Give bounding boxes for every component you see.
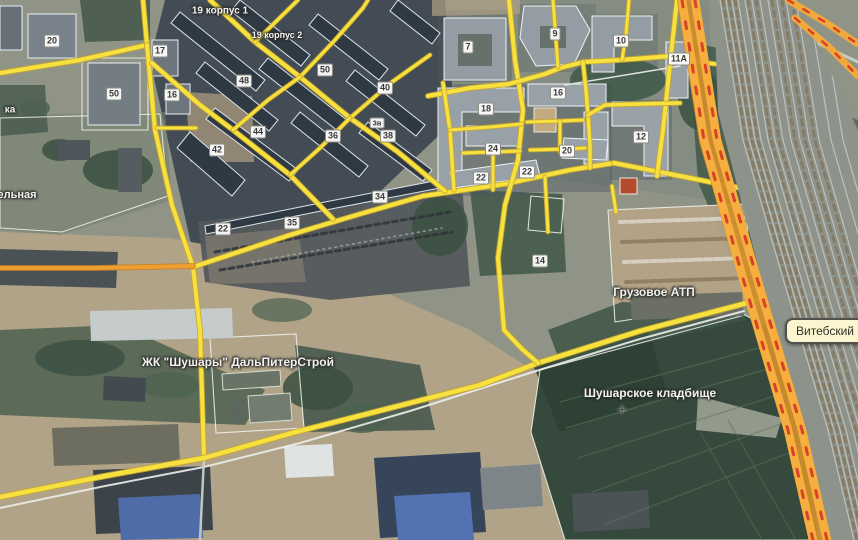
building-number-badge: 50 — [317, 64, 333, 77]
building-number-badge: 11А — [668, 53, 690, 66]
building-number-badge: 20 — [44, 35, 60, 48]
place-label[interactable]: ельная — [0, 189, 37, 201]
building-number-badge: 17 — [152, 45, 168, 58]
building-number-badge: 42 — [209, 144, 225, 157]
place-label[interactable]: 19 корпус 1 — [192, 6, 248, 17]
road-tooltip: Витебский п — [785, 318, 858, 344]
place-label[interactable]: ка — [5, 105, 16, 116]
building-number-badge: 22 — [215, 223, 231, 236]
place-label[interactable]: ЖК "Шушары" ДальПитерСтрой — [142, 355, 334, 369]
building-number-badge: 18 — [478, 103, 494, 116]
building-number-badge: 20 — [559, 145, 575, 158]
building-number-badge: 44 — [250, 126, 266, 139]
place-label[interactable]: 19 корпус 2 — [252, 30, 303, 40]
building-number-badge: 12 — [633, 131, 649, 144]
building-number-badge: 48 — [236, 75, 252, 88]
building-number-badge: 34 — [372, 191, 388, 204]
building-number-badge: 36 — [325, 130, 341, 143]
map-svg — [0, 0, 858, 540]
building-number-badge: 40 — [377, 82, 393, 95]
building-number-badge: 24 — [485, 143, 501, 156]
building-number-badge: 16 — [164, 89, 180, 102]
building-number-badge: 9 — [549, 28, 560, 41]
building-number-badge: 35 — [284, 217, 300, 230]
building-number-badge: 38 — [380, 130, 396, 143]
building-number-badge: 22 — [519, 166, 535, 179]
building-number-badge: 16 — [550, 87, 566, 100]
building-number-badge: 14 — [532, 255, 548, 268]
building-number-badge: 10 — [613, 35, 629, 48]
place-label[interactable]: Шушарское кладбище — [584, 386, 716, 400]
building-number-badge: 22 — [473, 172, 489, 185]
map-viewport[interactable]: Витебский п + 2050171648504044423в363834… — [0, 0, 858, 540]
building-number-badge: 7 — [462, 41, 473, 54]
building-number-badge: 50 — [106, 88, 122, 101]
place-label[interactable]: Грузовое АТП — [613, 285, 695, 299]
building-number-badge: 3в — [370, 118, 385, 129]
